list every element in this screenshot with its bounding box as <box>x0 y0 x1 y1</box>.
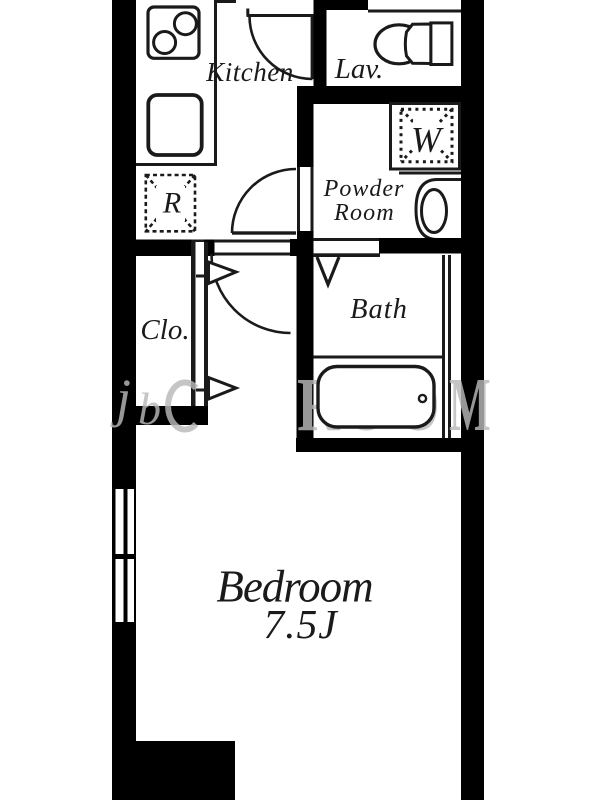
svg-text:Lav.: Lav. <box>334 53 384 85</box>
svg-text:W: W <box>411 120 444 160</box>
svg-text:Kitchen: Kitchen <box>205 57 293 87</box>
svg-text:Clo.: Clo. <box>140 314 189 346</box>
svg-text:Room: Room <box>333 200 395 226</box>
svg-text:Bath: Bath <box>350 294 408 325</box>
svg-text:R: R <box>162 187 181 220</box>
svg-text:M: M <box>449 364 491 447</box>
svg-text:7.5J: 7.5J <box>263 601 339 647</box>
svg-text:Powder: Powder <box>323 176 405 202</box>
svg-text:b: b <box>138 383 161 434</box>
